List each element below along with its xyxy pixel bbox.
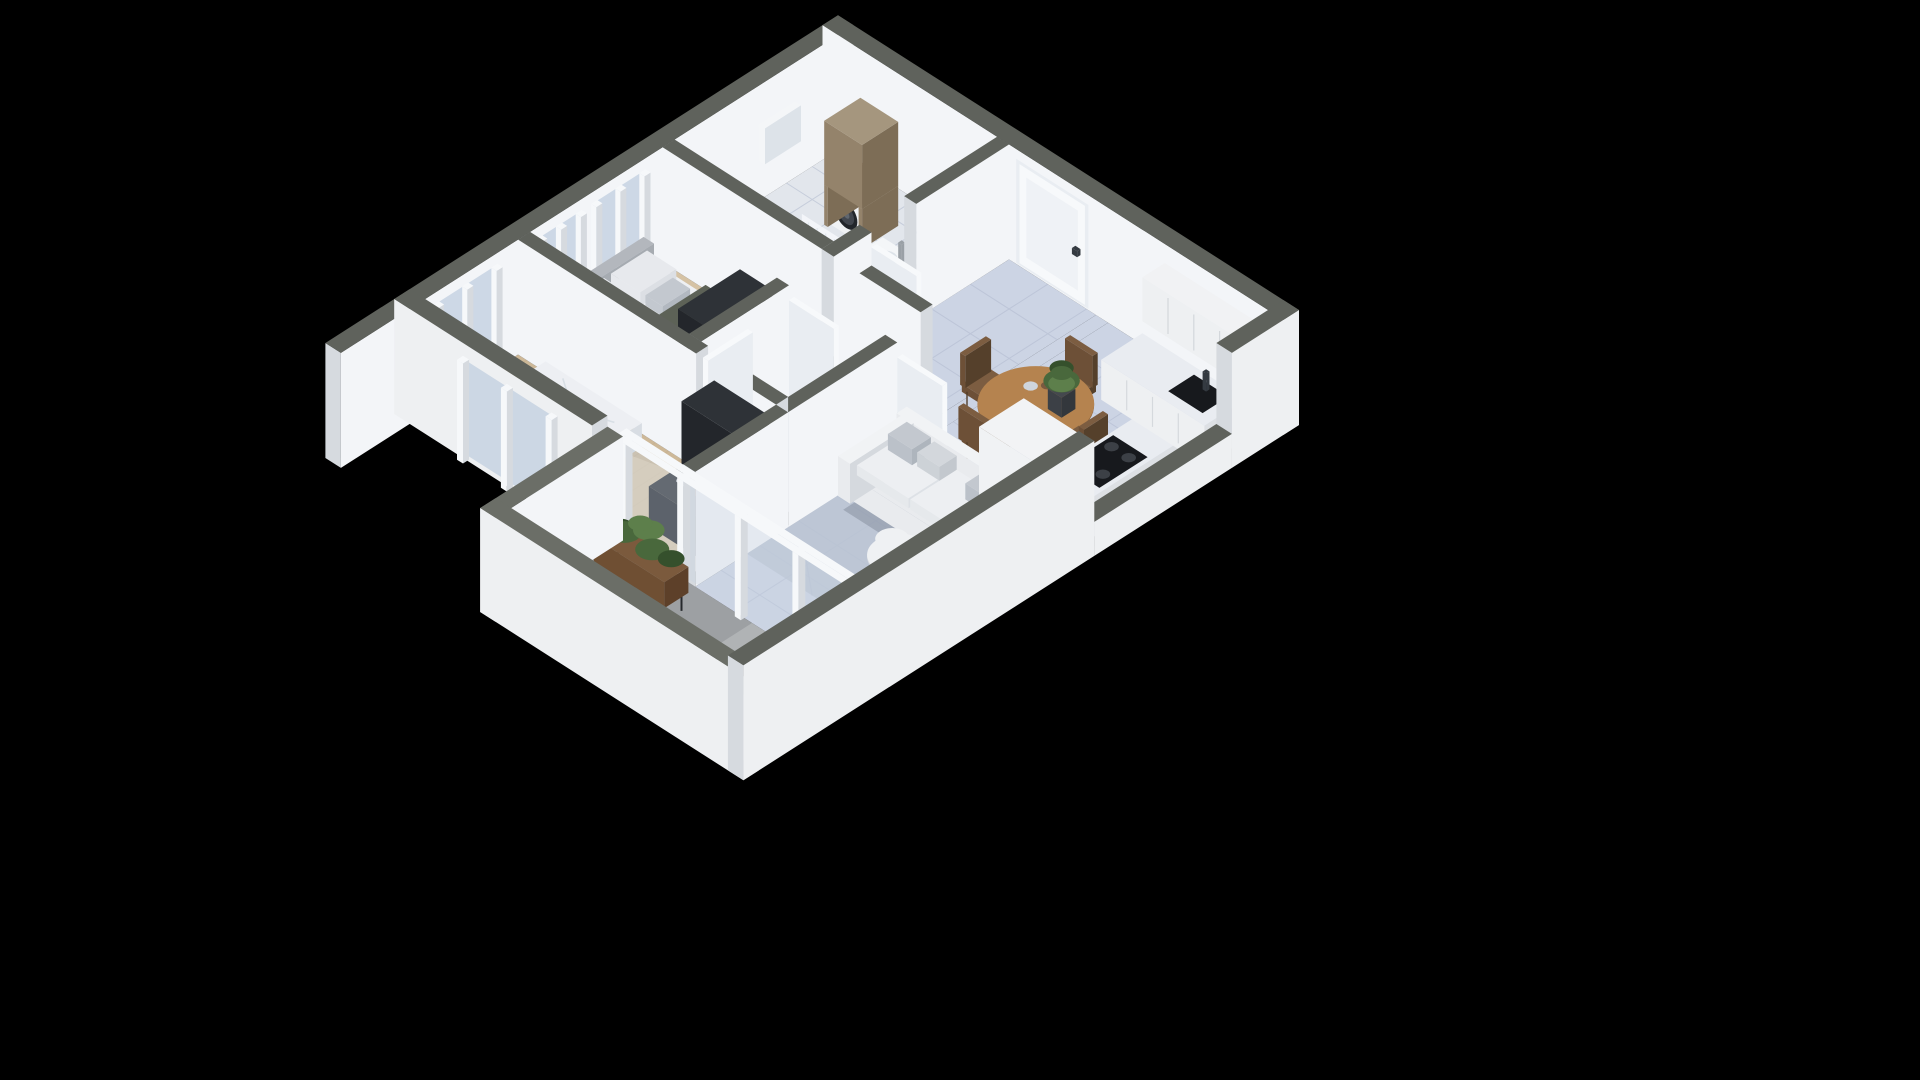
window-post: [501, 384, 513, 492]
window-post: [457, 356, 469, 464]
isometric-apartment-scene: [0, 0, 1920, 1080]
floorplan-render: [0, 0, 1920, 1080]
glazing-post: [735, 510, 748, 620]
